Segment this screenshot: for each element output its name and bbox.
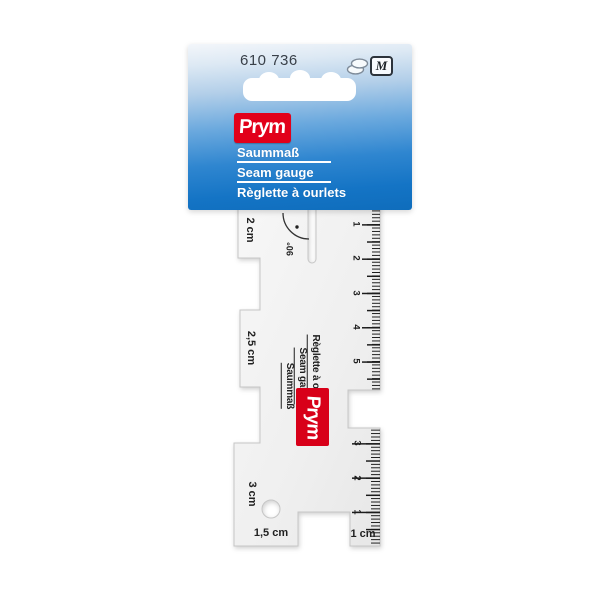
brand-logo-text: Prym [239, 117, 287, 139]
step-label-2cm: 2 cm [244, 217, 256, 242]
slot-scallop [259, 72, 279, 88]
card-title-de: Saummaß [237, 146, 331, 163]
lower-scale-number: 3 [352, 440, 363, 445]
product-number: 610 736 [240, 52, 298, 69]
angle-label: 90° [285, 242, 295, 256]
slot-scallop [321, 72, 341, 88]
upper-scale-number: 3 [351, 290, 362, 295]
angle-dot [295, 225, 298, 228]
unit-label-1cm: 1 cm [350, 528, 375, 540]
upper-scale-number: 5 [351, 358, 362, 363]
ruler-brand-logo-text: Prym [303, 395, 322, 440]
euro-hang-slot [243, 78, 356, 101]
step-label-1-5cm: 1,5 cm [254, 527, 288, 539]
upper-scale-number: 1 [351, 221, 362, 226]
size-badge-letter: M [376, 58, 388, 74]
slot-scallop [290, 70, 310, 86]
card-title-en: Seam gauge [237, 166, 331, 183]
ruler-label-de: Saummaß [281, 363, 295, 409]
lower-scale-number: 2 [352, 475, 363, 480]
price-group-coins-icon [346, 57, 370, 77]
upper-scale-number: 2 [351, 255, 362, 260]
step-label-2-5cm: 2,5 cm [245, 331, 257, 365]
ruler-brand-logo: Prym [296, 388, 329, 446]
lower-scale-number: 1 [352, 509, 363, 514]
brand-logo: Prym [234, 113, 291, 143]
size-badge: M [370, 56, 393, 76]
product-card: 610 736 M Prym Saummaß Seam gauge Règlet… [188, 44, 412, 210]
card-title-fr: Règlette à ourlets [237, 186, 331, 199]
upper-scale-number: 4 [351, 324, 362, 329]
step-label-3cm: 3 cm [246, 481, 258, 506]
upper-cm-scale [362, 207, 380, 391]
